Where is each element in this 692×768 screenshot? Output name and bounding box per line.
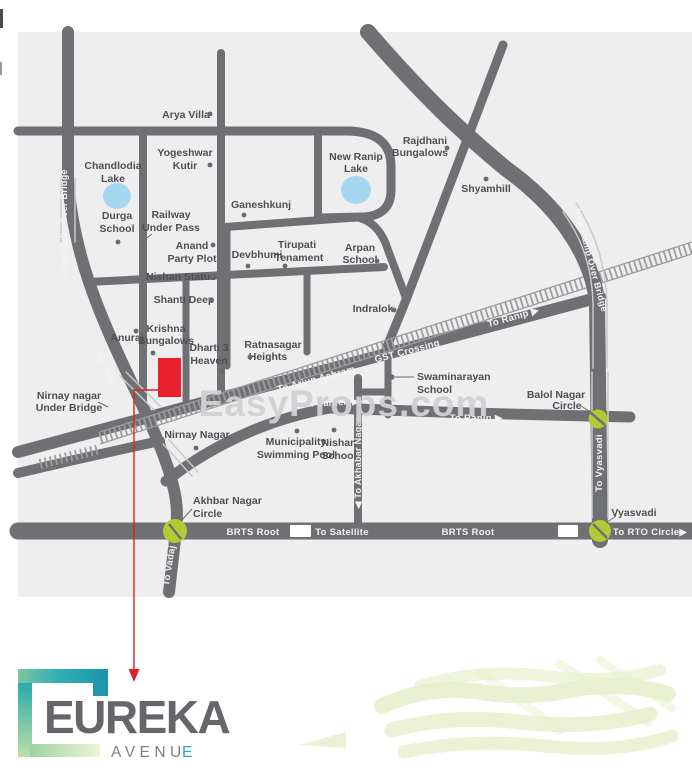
landmark-label: Circle <box>193 508 222 520</box>
scribble-wedge <box>300 732 346 748</box>
brts-station-west <box>290 525 311 537</box>
landmark-label: Kutir <box>173 160 198 172</box>
landmark-label: Arpan <box>345 242 375 254</box>
landmark-label: Bungalows <box>138 335 194 347</box>
landmark-arya-villa: Arya Villa <box>162 109 212 121</box>
landmark-label: Yogeshwar <box>157 147 212 159</box>
road-label-brts-root-west: BRTS Root <box>227 527 280 538</box>
landmark-dot <box>246 264 251 269</box>
landmark-dot <box>134 329 139 334</box>
location-map-page: Arya Villa YogeshwarKutir ChandlodiaLake… <box>0 0 692 768</box>
landmark-label: Under Bridge <box>36 402 103 414</box>
landmark-label: Ganeshkunj <box>231 199 291 211</box>
logo-subtitle: AVENU <box>111 744 186 761</box>
location-map: Arya Villa YogeshwarKutir ChandlodiaLake… <box>0 0 692 768</box>
landmark-label: Krishna <box>146 323 185 335</box>
landmark-dot <box>295 429 300 434</box>
landmark-label: Municipality <box>266 436 327 448</box>
scan-artifact <box>0 62 2 75</box>
landmark-dot <box>389 374 394 379</box>
landmark-label: Swaminarayan <box>417 371 491 383</box>
new-ranip-lake-water <box>341 176 371 204</box>
landmark-label: School <box>99 223 134 235</box>
landmark-shanti-deep: Shanti Deep <box>154 294 215 306</box>
landmark-dot <box>208 112 213 117</box>
landmark-arpan-school: ArpanSchool <box>342 242 379 266</box>
landmark-dot <box>484 177 489 182</box>
landmark-dot <box>194 446 199 451</box>
landmark-dot <box>445 146 450 151</box>
eureka-avenue-logo: EUREKA AVENU E <box>18 669 230 761</box>
landmark-label: Nirnay nagar <box>37 390 101 402</box>
landmark-label: Lake <box>344 163 368 175</box>
logo-frame-bottom <box>30 744 100 757</box>
landmark-dot <box>220 369 225 374</box>
landmark-label: Shanti Deep <box>154 294 215 306</box>
landmark-label: Lake <box>101 173 125 185</box>
landmark-label: Dharti 3 <box>189 342 228 354</box>
landmark-dot <box>392 308 397 313</box>
road-label-to-rto-circle: To RTO Circle▶ <box>613 527 688 538</box>
landmark-label: Ratnasagar <box>244 339 301 351</box>
watermark-text: EasyProps.com <box>199 383 490 424</box>
landmark-nirnay-nagar-under-bridge: Nirnay nagarUnder Bridge <box>36 390 108 414</box>
landmark-label: Anand <box>176 240 209 252</box>
landmark-dot <box>210 275 215 280</box>
landmark-label: Party Plot <box>167 253 217 265</box>
landmark-label: Akhbar Nagar <box>193 495 262 507</box>
landmark-label: Under Pass <box>142 222 200 234</box>
road-label-to-vyasvadi: To Vyasvadi <box>594 434 605 492</box>
logo-title: EUREKA <box>44 691 230 743</box>
arrowhead <box>129 669 140 682</box>
landmark-dot <box>151 351 156 356</box>
landmark-label: Nirnay Nagar <box>164 429 229 441</box>
brts-station-east <box>558 525 578 537</box>
landmark-dot <box>332 428 337 433</box>
scribble-watermark <box>300 660 672 752</box>
landmark-nishan-status: Nishan Status <box>146 271 216 283</box>
road-label-brts-root-east: BRTS Root <box>442 527 495 538</box>
landmark-label: Heights <box>249 351 288 363</box>
landmark-label: Rajdhani <box>403 135 447 147</box>
road-label-to-satellite: To Satellite <box>315 527 369 538</box>
landmark-dot <box>242 213 247 218</box>
landmark-label: Circle <box>552 400 581 412</box>
landmark-dot <box>211 243 216 248</box>
road-label-to-akhabar-nagar: ◀ To Akhabar Nagar <box>353 417 363 510</box>
road-label-chandlodia-over-bridge: Chandlodia Over Bridge <box>59 169 69 279</box>
chandlodia-lake-water <box>103 183 131 209</box>
landmark-label: Railway <box>151 209 190 221</box>
landmark-label: Heaven <box>190 355 227 367</box>
landmark-label: Nishan Status <box>146 271 216 283</box>
logo-subtitle-accent: E <box>182 744 192 761</box>
logo-frame-top <box>18 669 108 683</box>
scan-artifact <box>0 9 3 28</box>
landmark-label: Arya Villa <box>162 109 210 121</box>
landmark-label: New Ranip <box>329 151 383 163</box>
landmark-dot <box>248 355 253 360</box>
landmark-dot <box>116 240 121 245</box>
site-marker <box>158 358 181 397</box>
landmark-indralok: Indralok <box>353 303 397 315</box>
landmark-dot <box>208 163 213 168</box>
landmark-dot <box>375 259 380 264</box>
landmark-label: Chandlodia <box>84 160 141 172</box>
landmark-label: Bungalows <box>392 147 448 159</box>
landmark-label: School <box>342 254 377 266</box>
landmark-label: Indralok <box>353 303 394 315</box>
landmark-label: Tenament <box>275 252 324 264</box>
landmark-label: Tirupati <box>278 239 316 251</box>
landmark-dot <box>283 264 288 269</box>
landmark-label: Shyamhill <box>461 183 511 195</box>
logo-frame-left <box>18 683 32 757</box>
landmark-dot <box>209 298 214 303</box>
landmark-label: Nishan <box>321 437 356 449</box>
landmark-label: School <box>321 450 356 462</box>
landmark-label: Vyasvadi <box>611 507 656 519</box>
landmark-label: Durga <box>102 210 132 222</box>
